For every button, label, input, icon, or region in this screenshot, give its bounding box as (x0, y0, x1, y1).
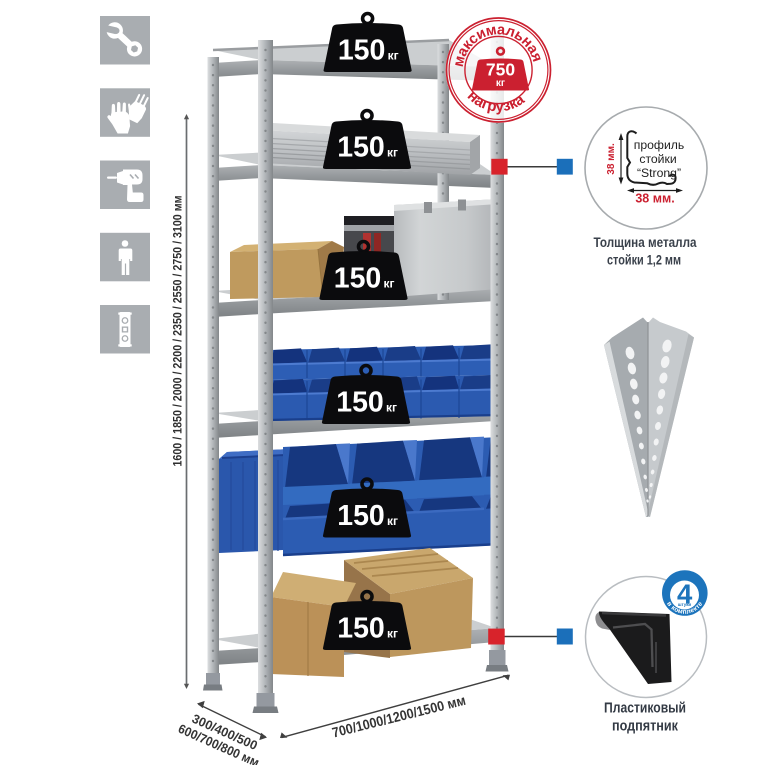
svg-text:стойки: стойки (639, 152, 676, 166)
svg-text:стойки 1,2 мм: стойки 1,2 мм (607, 252, 681, 268)
svg-text:38 мм.: 38 мм. (635, 192, 674, 206)
svg-text:Толщина металла: Толщина металла (594, 234, 697, 250)
svg-text:Пластиковый: Пластиковый (604, 701, 686, 717)
svg-text:кг: кг (496, 78, 505, 89)
svg-text:750: 750 (486, 60, 515, 80)
svg-text:подпятник: подпятник (612, 719, 679, 735)
svg-text:штуки: штуки (678, 602, 692, 607)
svg-text:“Strong”: “Strong” (637, 166, 681, 180)
svg-text:38 мм.: 38 мм. (606, 143, 617, 175)
svg-text:1600 / 1850 / 2000 / 2200 / 23: 1600 / 1850 / 2000 / 2200 / 2350 / 2550 … (171, 196, 185, 467)
svg-text:профиль: профиль (634, 138, 684, 152)
